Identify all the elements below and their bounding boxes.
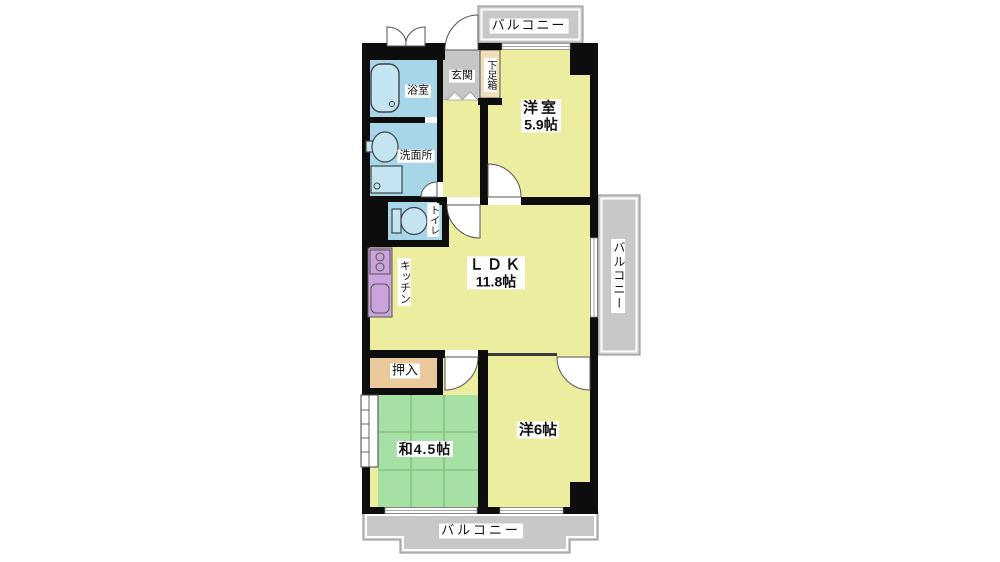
western-room-59-size: 5.9帖 [524, 117, 557, 133]
toilet-icon [392, 208, 427, 235]
closet-label: 押入 [390, 364, 420, 379]
double-door-right [406, 27, 425, 46]
window-top [502, 44, 570, 50]
shutter-window-left [361, 395, 378, 467]
balcony-bottom-label: バルコニー [439, 524, 523, 539]
ldk-name: ＬＤＫ [469, 256, 523, 273]
window-bottom-right [500, 508, 563, 514]
western-room-59-label: 洋室 5.9帖 [521, 99, 561, 132]
balcony-right-label: バルコニー [611, 239, 625, 313]
double-door-left [387, 27, 406, 46]
window-bottom-left [385, 508, 477, 514]
bathtub-icon [371, 64, 399, 112]
toilet-label: トイレ [427, 203, 439, 237]
kitchen-counter-icon [368, 248, 392, 317]
entrance-door-swing [445, 15, 478, 50]
balcony-top-label: バルコニー [490, 19, 569, 34]
shoe-box-label: 下足箱 [484, 58, 496, 92]
window-right [591, 238, 598, 317]
japanese-room-label: 和4.5帖 [397, 441, 453, 457]
ldk-label: ＬＤＫ 11.8帖 [467, 256, 525, 289]
western-room-6-label: 洋6帖 [517, 421, 559, 438]
ldk-size: 11.8帖 [476, 274, 516, 290]
western-room-59-name: 洋室 [523, 99, 559, 116]
entrance-label: 玄関 [449, 70, 475, 83]
floor-plan: バルコニー 玄関 下足箱 洋室 5.9帖 浴室 洗面所 トイレ キッチン ＬＤＫ… [0, 0, 1000, 562]
kitchen-label: キッチン [398, 258, 411, 306]
washing-machine-icon [371, 166, 402, 193]
bathroom-label: 浴室 [405, 85, 431, 98]
ldk-partition-line [488, 353, 557, 356]
washroom-label: 洗面所 [398, 150, 435, 163]
